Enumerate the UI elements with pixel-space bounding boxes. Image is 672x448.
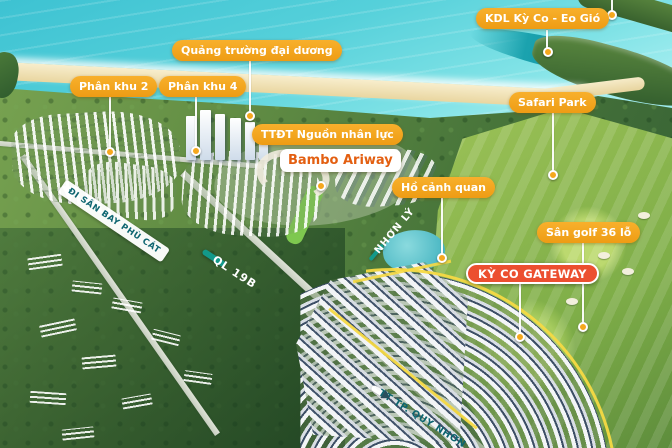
label-kdl-ky-co-eo-gio: KDL Kỳ Co - Eo Gió	[476, 8, 609, 29]
leader-line	[249, 59, 251, 114]
map-marker-dot	[245, 111, 255, 121]
highrise-tower	[215, 114, 225, 160]
label-safari-park: Safari Park	[509, 92, 596, 113]
leader-line	[519, 282, 521, 334]
highrise-tower	[200, 110, 211, 160]
label-golf-course: Sân golf 36 lỗ	[537, 222, 640, 243]
label-ky-co-gateway: KỲ CO GATEWAY	[466, 263, 599, 284]
label-zone-2: Phân khu 2	[70, 76, 157, 97]
leader-line	[195, 96, 197, 149]
map-marker-dot	[548, 170, 558, 180]
aerial-masterplan-map: ĐI SÂN BAY PHÙ CÁT QL 19B NHƠN LÝ TT TP.…	[0, 0, 672, 448]
label-landscape-lake: Hồ cảnh quan	[392, 177, 495, 198]
leader-line	[552, 112, 554, 172]
map-marker-dot	[437, 253, 447, 263]
map-marker-dot	[191, 146, 201, 156]
label-ocean-square: Quảng trường đại dương	[172, 40, 342, 61]
map-marker-dot	[105, 147, 115, 157]
map-marker-dot	[578, 322, 588, 332]
label-bambo-ariway: Bambo Ariway	[280, 149, 401, 172]
golf-bunker	[598, 252, 610, 259]
golf-bunker	[566, 298, 578, 305]
map-marker-dot	[316, 181, 326, 191]
map-marker-dot	[515, 332, 525, 342]
leader-line	[109, 96, 111, 150]
label-zone-4: Phân khu 4	[159, 76, 246, 97]
highrise-tower	[230, 118, 241, 160]
leader-line	[441, 197, 443, 255]
map-marker-dot	[543, 47, 553, 57]
golf-bunker	[638, 212, 650, 219]
house-row	[30, 391, 67, 405]
golf-bunker	[622, 268, 634, 275]
label-hr-center: TTĐT Nguồn nhân lực	[252, 124, 403, 145]
